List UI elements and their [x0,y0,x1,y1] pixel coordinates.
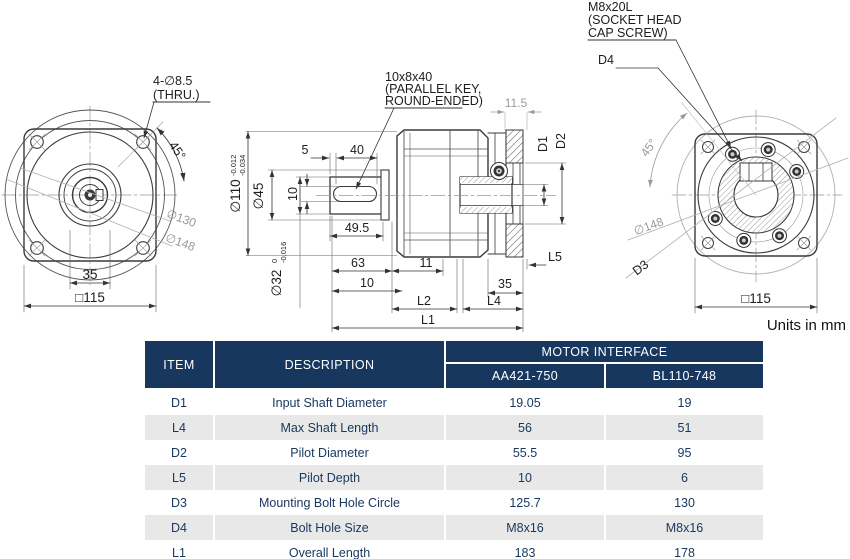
thru-hole-note: 4-∅8.5 (THRU.) [144,74,210,138]
header-description: DESCRIPTION [215,341,444,388]
d4-note: D4 [598,53,742,161]
cell-d2-item: D2 [145,440,213,465]
svg-text:M8x20L: M8x20L [588,0,633,14]
table-header: ITEM DESCRIPTION MOTOR INTERFACE AA421-7… [145,341,763,388]
cell-l5-aa421: 10 [446,465,604,490]
cell-l1-bl110: 178 [606,540,763,559]
motor-interface-table: ITEM DESCRIPTION MOTOR INTERFACE AA421-7… [145,341,763,559]
svg-text:L2: L2 [417,294,431,308]
cell-l5-item: L5 [145,465,213,490]
cell-d1-aa421: 19.05 [446,390,604,415]
cap-screw-section [491,163,508,180]
gearbox-drawing-page: 4-∅8.5 (THRU.) 45° ∅130 ∅148 35 [0,0,850,559]
table-row-l4: L4 Max Shaft Length 56 51 [145,415,763,440]
units-note: Units in mm [767,317,846,334]
svg-text:-0.012: -0.012 [229,155,238,176]
svg-text:∅110: ∅110 [228,179,243,212]
cell-l4-description: Max Shaft Length [215,415,444,440]
cell-l1-description: Overall Length [215,540,444,559]
dim-l1: L1 [332,313,523,328]
cell-d2-aa421: 55.5 [446,440,604,465]
svg-text:11.5: 11.5 [505,96,528,110]
dim-l2: L2 [392,294,457,309]
cap-screw-note: M8x20L (SOCKET HEAD CAP SCREW) [588,0,731,148]
cell-l5-bl110: 6 [606,465,763,490]
dim-35-section: 35 [488,277,523,293]
cell-d3-description: Mounting Bolt Hole Circle [215,490,444,515]
table-row-l5: L5 Pilot Depth 10 6 [145,465,763,490]
cell-l4-aa421: 56 [446,415,604,440]
header-aa421-750: AA421-750 [446,364,604,388]
svg-text:10: 10 [360,276,374,290]
technical-drawing: 4-∅8.5 (THRU.) 45° ∅130 ∅148 35 [0,0,850,338]
svg-text:∅148: ∅148 [164,230,198,254]
svg-text:11: 11 [420,256,433,270]
svg-text:-0.016: -0.016 [279,242,288,263]
svg-text:4-∅8.5: 4-∅8.5 [153,74,192,88]
svg-text:35: 35 [82,267,97,282]
section-flange-hatch-bottom [506,224,523,257]
svg-text:L1: L1 [421,313,435,327]
header-item: ITEM [145,341,213,388]
svg-text:10: 10 [286,187,300,201]
header-motor-interface: MOTOR INTERFACE [446,341,763,362]
svg-text:∅130: ∅130 [165,206,199,230]
dim-63: 63 [332,256,392,271]
cell-l4-item: L4 [145,415,213,440]
svg-text:-0.034: -0.034 [238,155,247,176]
svg-text:L5: L5 [548,250,562,264]
svg-text:∅148: ∅148 [632,214,666,238]
dim-11-5: 11.5 [491,96,541,130]
cell-l1-aa421: 183 [446,540,604,559]
cell-d1-item: D1 [145,390,213,415]
svg-text:40: 40 [350,143,364,157]
cell-d2-bl110: 95 [606,440,763,465]
table-row-d4: D4 Bolt Hole Size M8x16 M8x16 [145,515,763,540]
svg-text:∅32: ∅32 [269,270,284,297]
table-row-d1: D1 Input Shaft Diameter 19.05 19 [145,390,763,415]
svg-text:0: 0 [270,259,279,263]
cell-d3-bl110: 130 [606,490,763,515]
front-dia-leaders: ∅130 ∅148 [6,168,198,254]
rear-view: 45° ∅148 D3 M8x20L (SOCKET HEAD CAP SCRE… [588,0,848,313]
svg-text:(THRU.): (THRU.) [153,88,200,102]
rear-keyway [740,163,772,181]
table-body: D1 Input Shaft Diameter 19.05 19 L4 Max … [145,390,763,559]
rear-d3-leader: D3 [626,118,836,278]
svg-text:(SOCKET HEAD: (SOCKET HEAD [588,13,682,27]
dim-l5: L5 [529,250,562,265]
front-view: 4-∅8.5 (THRU.) 45° ∅130 ∅148 35 [2,74,210,312]
svg-text:∅45: ∅45 [251,183,266,210]
svg-text:5: 5 [302,143,309,157]
svg-text:D1: D1 [536,136,550,152]
svg-text:□115: □115 [741,291,771,306]
cell-l4-bl110: 51 [606,415,763,440]
cell-d4-bl110: M8x16 [606,515,763,540]
svg-text:□115: □115 [75,290,105,305]
svg-text:D4: D4 [598,53,614,67]
svg-text:L4: L4 [487,294,501,308]
cell-d4-description: Bolt Hole Size [215,515,444,540]
table-row-d2: D2 Pilot Diameter 55.5 95 [145,440,763,465]
cell-d1-description: Input Shaft Diameter [215,390,444,415]
cell-d3-aa421: 125.7 [446,490,604,515]
table-row-l1: L1 Overall Length 183 178 [145,540,763,559]
cell-d4-aa421: M8x16 [446,515,604,540]
svg-text:CAP SCREW): CAP SCREW) [588,26,668,40]
svg-text:D3: D3 [630,257,651,278]
svg-text:49.5: 49.5 [345,221,369,235]
section-shaft-collar [381,170,389,220]
dim-11: 11 [392,256,443,271]
cell-l1-item: L1 [145,540,213,559]
table-row-d3: D3 Mounting Bolt Hole Circle 125.7 130 [145,490,763,515]
cell-l5-description: Pilot Depth [215,465,444,490]
svg-text:ROUND-ENDED): ROUND-ENDED) [385,94,483,108]
section-flange-hatch-top [506,130,523,163]
dim-10: 10 [332,276,402,291]
header-bl110-748: BL110-748 [606,364,763,388]
section-view: 10x8x40 (PARALLEL KEY, ROUND-ENDED) 5 40… [228,70,568,332]
section-key-slot [334,187,377,202]
svg-text:63: 63 [351,256,365,270]
cell-d2-description: Pilot Diameter [215,440,444,465]
cell-d3-item: D3 [145,490,213,515]
cell-d4-item: D4 [145,515,213,540]
svg-text:D2: D2 [554,133,568,149]
cell-d1-bl110: 19 [606,390,763,415]
svg-text:35: 35 [498,277,512,291]
dim-l4: L4 [463,294,523,309]
